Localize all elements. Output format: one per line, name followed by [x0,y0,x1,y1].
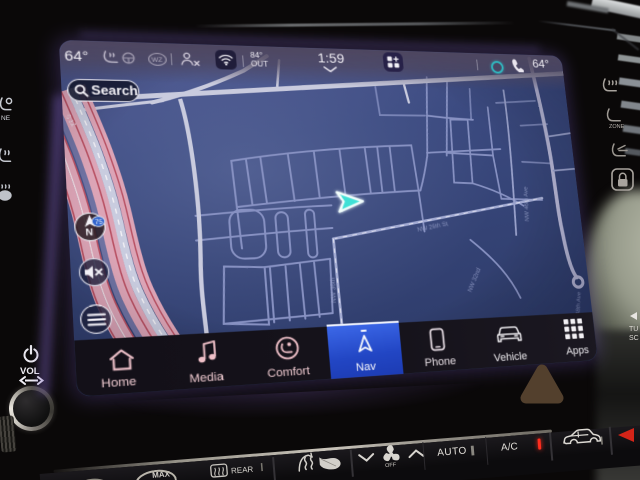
svg-text:ZONE: ZONE [609,124,625,130]
svg-text:NE: NE [1,115,11,122]
svg-text:TU: TU [629,326,638,333]
svg-text:VOL: VOL [20,366,40,377]
svg-text:OFF: OFF [385,462,397,469]
svg-text:REAR: REAR [231,465,254,476]
svg-text:75: 75 [95,219,103,226]
svg-text:WZ: WZ [151,57,163,64]
svg-text:N: N [85,228,93,239]
svg-text:SC: SC [629,335,639,342]
